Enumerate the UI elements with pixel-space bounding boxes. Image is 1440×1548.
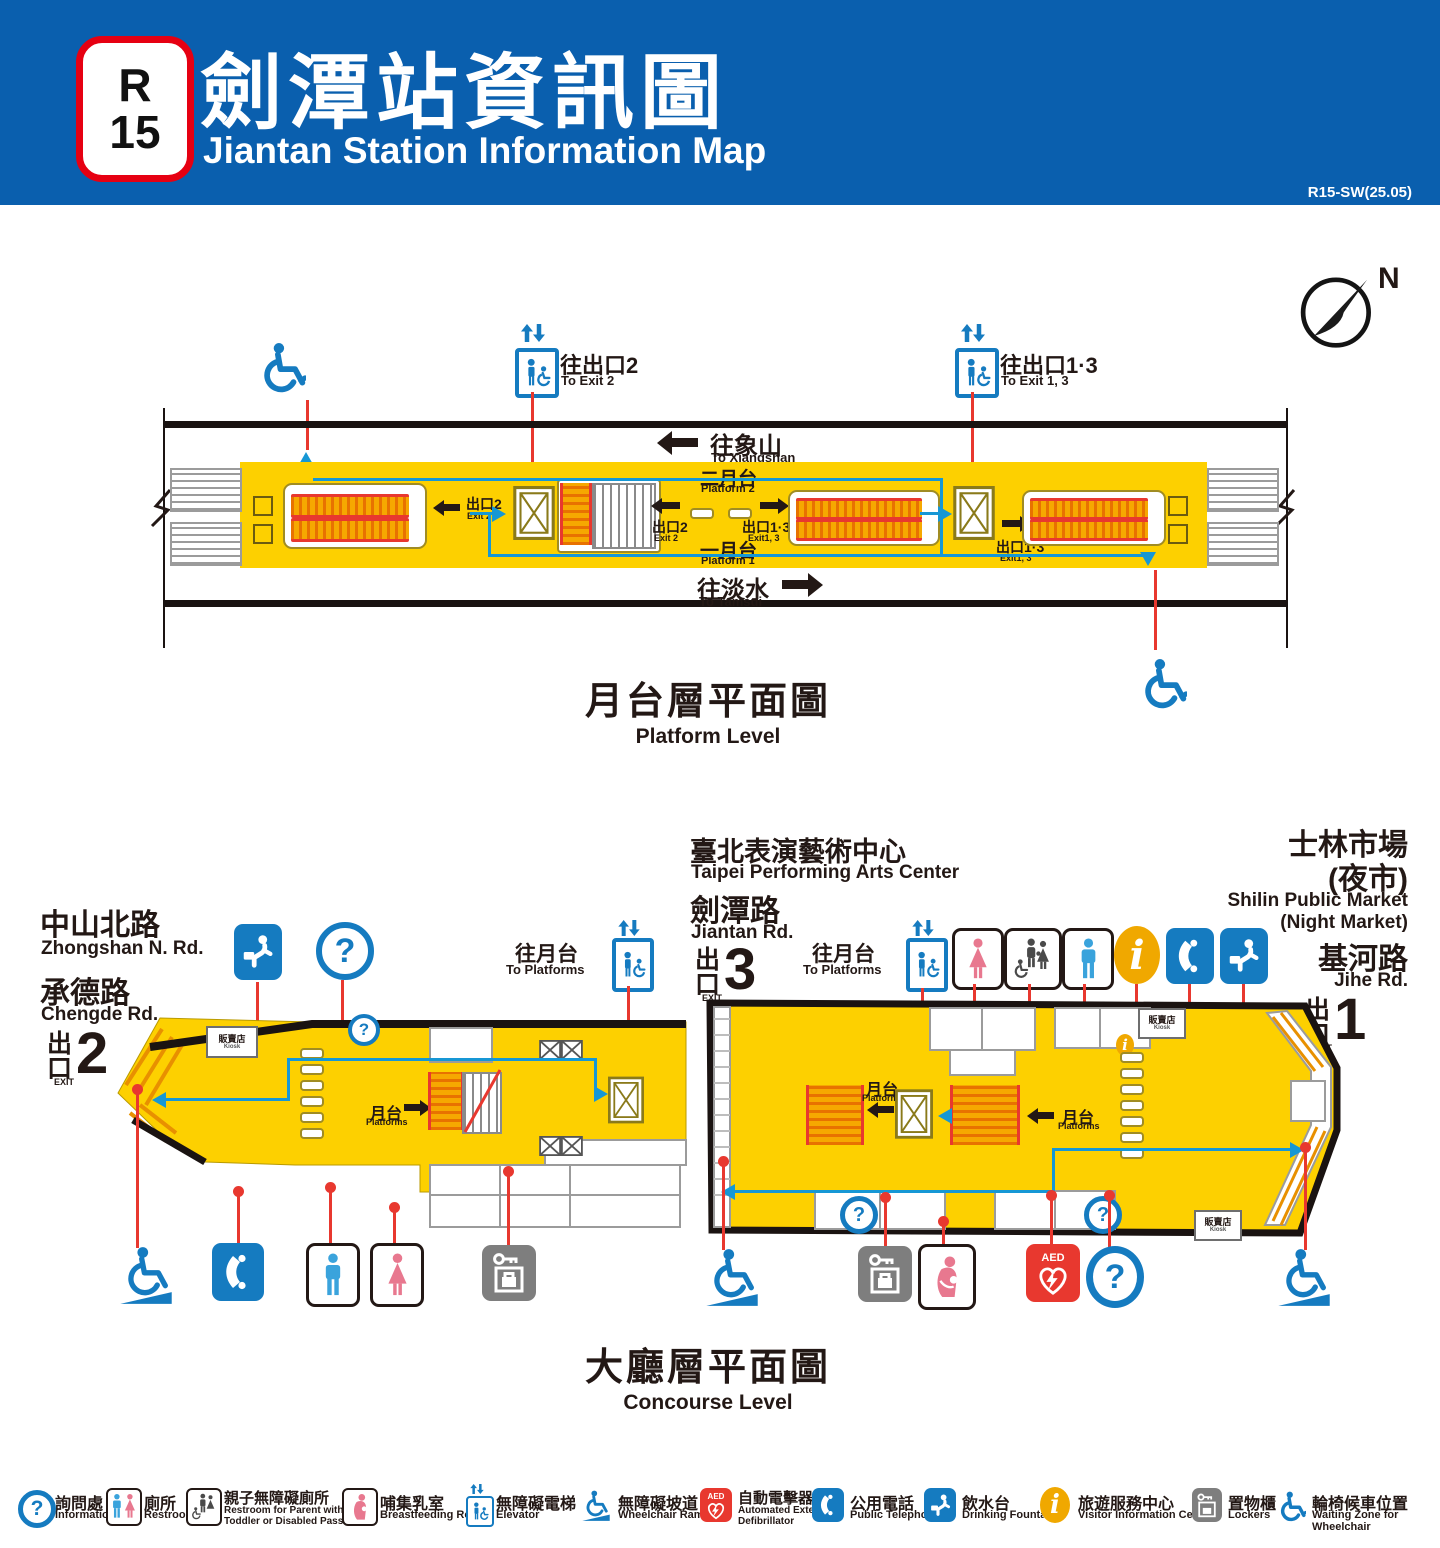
connector-line <box>1304 1148 1307 1250</box>
stairs-right-lower <box>1207 522 1279 566</box>
elevator-updown-arrows-icon <box>910 920 936 936</box>
page-title-en: Jiantan Station Information Map <box>203 130 766 172</box>
kiosk: 販賣店 Kiosk <box>1194 1210 1242 1241</box>
lockers-icon <box>482 1245 536 1301</box>
connector-line <box>136 1090 139 1248</box>
platforms-arrow <box>878 1106 894 1113</box>
to-tamsui-en: To Tamsui <box>699 594 762 609</box>
to-xiangshan-arrow <box>672 438 698 447</box>
connector-line <box>237 1190 240 1246</box>
sign-to-exit13-en: To Exit 1, 3 <box>1001 373 1069 388</box>
mens-restroom-icon <box>1062 928 1114 990</box>
sign-to-exit2-en: To Exit 2 <box>561 373 614 388</box>
fare-gate <box>1120 1132 1144 1143</box>
to-platforms-en: To Platforms <box>506 962 585 977</box>
accessible-route <box>287 1058 290 1101</box>
elevator-icon <box>906 938 948 992</box>
connector-line <box>329 1186 332 1246</box>
kiosk: 販賣店 Kiosk <box>206 1026 258 1058</box>
elevator-icon <box>466 1496 494 1527</box>
womens-restroom-icon <box>952 928 1004 990</box>
information-icon: ? <box>18 1490 56 1528</box>
exit-word: 出口 <box>694 946 717 996</box>
kiosk-label-zh: 販賣店 <box>1204 1218 1231 1227</box>
kiosk-label-en: Kiosk <box>224 1044 240 1050</box>
concourse-level-title-en: Concourse Level <box>558 1391 858 1415</box>
elevator-plan-glyph <box>608 1076 644 1124</box>
fare-gate <box>1120 1068 1144 1079</box>
legend-label-en2: Defibrillator <box>738 1516 794 1527</box>
elevator-updown-arrows-icon <box>616 920 642 936</box>
platform-level-title-en: Platform Level <box>558 725 858 749</box>
header: R 15 劍潭站資訊圖 Jiantan Station Information … <box>0 0 1440 205</box>
fare-gate <box>300 1112 324 1123</box>
wheelchair-waiting-zone-icon <box>1276 1490 1306 1522</box>
accessible-route <box>164 1098 290 1101</box>
fare-gate <box>300 1064 324 1075</box>
concourse-level-title: 大廳層平面圖 Concourse Level <box>558 1336 858 1415</box>
drinking-fountain-icon <box>1220 928 1268 984</box>
route-arrow-left <box>152 1092 166 1108</box>
public-telephone-icon <box>1166 928 1214 984</box>
break-mark-left <box>148 488 172 528</box>
kiosk: 販賣店 Kiosk <box>1138 1008 1186 1039</box>
fare-gate <box>1120 1116 1144 1127</box>
family-accessible-restroom-icon <box>186 1488 222 1526</box>
elevator-icon <box>515 348 559 398</box>
connector-line <box>393 1206 396 1246</box>
exit-number: 3 <box>724 946 756 994</box>
accessible-route <box>733 1190 1055 1193</box>
visitor-information-icon: i <box>1040 1487 1070 1523</box>
kiosk-label-zh: 販賣店 <box>218 1035 245 1044</box>
information-icon: ? <box>1086 1246 1144 1308</box>
gate-array <box>536 1040 586 1060</box>
accessible-route <box>313 478 940 481</box>
pillar <box>253 496 273 516</box>
public-telephone-icon <box>212 1243 264 1301</box>
poi-shilin-market-en: Shilin Public Market <box>1158 890 1408 912</box>
connector-line <box>722 1162 725 1250</box>
pillar <box>1168 496 1188 516</box>
escalator <box>796 498 922 520</box>
platform-gap <box>690 508 714 519</box>
womens-restroom-icon <box>370 1243 424 1307</box>
kiosk-label-en: Kiosk <box>1154 1025 1170 1031</box>
accessible-route <box>488 513 491 556</box>
exit2-label-en: Exit 2 <box>654 533 678 543</box>
legend-label-en: Wheelchair Ramp <box>618 1509 710 1521</box>
accessible-route <box>920 512 940 515</box>
drinking-fountain-icon <box>234 924 282 980</box>
legend-label-en: Restroom for Parent with <box>224 1505 343 1516</box>
elevator-icon <box>955 348 999 398</box>
platforms-arrow <box>1038 1112 1054 1119</box>
escalator <box>1030 498 1148 520</box>
wheelchair-waiting-zone-icon <box>1137 652 1187 714</box>
concourse-level-title-zh: 大廳層平面圖 <box>558 1336 858 1391</box>
stairs-left-upper <box>170 468 242 512</box>
elevator-icon <box>612 938 654 992</box>
aed-icon: AED <box>1026 1244 1080 1302</box>
legend-label-en: Lockers <box>1228 1509 1270 1521</box>
fare-gate <box>300 1096 324 1107</box>
route-arrow-down <box>1140 552 1156 566</box>
elevator-updown-arrows-icon <box>468 1484 486 1494</box>
escalator <box>560 483 592 545</box>
legend-label-en: Waiting Zone for Wheelchair <box>1312 1509 1440 1533</box>
fare-gate <box>1120 1052 1144 1063</box>
wheelchair-ramp-icon <box>580 1490 612 1522</box>
exit13-label-en: Exit1, 3 <box>748 533 780 543</box>
to-tamsui-arrow <box>782 580 808 589</box>
stairs-left-lower <box>170 522 242 566</box>
compass-icon <box>1300 272 1378 350</box>
connector-line <box>1050 1194 1053 1250</box>
station-information-map: R 15 劍潭站資訊圖 Jiantan Station Information … <box>0 0 1440 1548</box>
route-arrow-right <box>492 506 506 522</box>
lockers-icon <box>1192 1488 1222 1522</box>
connector-line <box>1154 570 1157 650</box>
mens-restroom-icon <box>306 1243 360 1307</box>
platform2-en: Platform 2 <box>701 483 755 495</box>
aed-label: AED <box>1041 1253 1064 1264</box>
escalator <box>291 494 409 518</box>
drinking-fountain-icon <box>924 1488 956 1522</box>
route-arrow-right <box>594 1086 608 1102</box>
platforms-label-en: Platforms <box>1058 1121 1100 1131</box>
escalator <box>1030 519 1148 541</box>
elevator-plan-glyph <box>513 486 555 540</box>
poi-arts-center-en: Taipei Performing Arts Center <box>691 862 959 884</box>
elevator-updown-arrows-icon <box>519 324 547 342</box>
wheelchair-ramp-icon <box>702 1248 762 1308</box>
escalator <box>291 518 409 542</box>
wheelchair-waiting-zone-icon <box>256 336 306 398</box>
elevator-plan-glyph <box>953 486 995 540</box>
information-icon-small: ? <box>348 1014 380 1046</box>
elevator-updown-arrows-icon <box>959 324 987 342</box>
exit2-arrow <box>662 502 680 509</box>
fare-gate <box>1120 1084 1144 1095</box>
connector-line <box>1108 1194 1111 1250</box>
information-icon-small: ? <box>840 1196 878 1234</box>
track-end-right <box>1286 408 1288 648</box>
accessible-route <box>488 554 1148 557</box>
accessible-route <box>1052 1148 1292 1151</box>
compass-north-label: N <box>1378 262 1400 296</box>
accessible-route <box>1052 1148 1055 1193</box>
fare-gate <box>300 1128 324 1139</box>
exit-word: 出口 <box>46 1030 69 1080</box>
line-code: R <box>118 62 151 109</box>
platforms-label-en: Platforms <box>366 1117 408 1127</box>
escalator <box>428 1072 464 1130</box>
legend-label-en: Elevator <box>496 1509 539 1521</box>
to-platforms-en: To Platforms <box>803 962 882 977</box>
visitor-information-icon: i <box>1114 926 1160 984</box>
wheelchair-ramp-icon <box>116 1246 176 1306</box>
fare-gate <box>300 1080 324 1091</box>
platform-level-title-zh: 月台層平面圖 <box>558 670 858 725</box>
breastfeeding-room-icon <box>918 1244 976 1310</box>
platforms-arrow <box>404 1104 420 1111</box>
street-zhongshan-en: Zhongshan N. Rd. <box>41 938 204 960</box>
kiosk-label-zh: 販賣店 <box>1148 1016 1175 1025</box>
stair-divider <box>460 1068 505 1134</box>
connector-line <box>884 1196 887 1250</box>
kiosk-label-en: Kiosk <box>1210 1227 1226 1233</box>
station-number: 15 <box>109 109 160 156</box>
pillar <box>1168 524 1188 544</box>
restroom-icon <box>106 1488 142 1526</box>
accessible-route <box>940 478 943 556</box>
aed-label: AED <box>708 1493 725 1501</box>
lockers-icon <box>858 1246 912 1302</box>
exit13-arrow <box>760 502 778 509</box>
line-station-badge: R 15 <box>76 36 194 182</box>
accessible-route <box>287 1058 597 1061</box>
exit13-arrow <box>1002 520 1020 527</box>
connector-line <box>507 1170 510 1246</box>
route-arrow-left <box>938 1108 952 1124</box>
stairs-center <box>592 483 656 549</box>
family-accessible-restroom-icon <box>1004 928 1062 990</box>
pillar <box>253 524 273 544</box>
escalator <box>950 1085 1020 1145</box>
page-title-zh: 劍潭站資訊圖 <box>200 26 728 145</box>
aed-icon: AED <box>700 1488 732 1522</box>
exit2-arrow <box>444 504 460 511</box>
platform-level-title: 月台層平面圖 Platform Level <box>558 670 858 749</box>
exit-2-badge: 出口 EXIT 2 <box>40 1030 108 1087</box>
breastfeeding-room-icon <box>342 1488 378 1526</box>
stairs-right-upper <box>1207 468 1279 512</box>
elevator-plan-glyph <box>895 1086 933 1142</box>
wheelchair-ramp-icon <box>1274 1248 1334 1308</box>
escalator <box>796 519 922 541</box>
fare-gate <box>1120 1100 1144 1111</box>
information-icon: ? <box>316 922 374 980</box>
public-telephone-icon <box>812 1488 844 1522</box>
track-end-left <box>163 408 165 648</box>
gate-array <box>536 1136 586 1156</box>
information-icon-small: ? <box>1084 1196 1122 1234</box>
map-version: R15-SW(25.05) <box>1308 184 1412 201</box>
exit-word-en: EXIT <box>54 1078 74 1087</box>
